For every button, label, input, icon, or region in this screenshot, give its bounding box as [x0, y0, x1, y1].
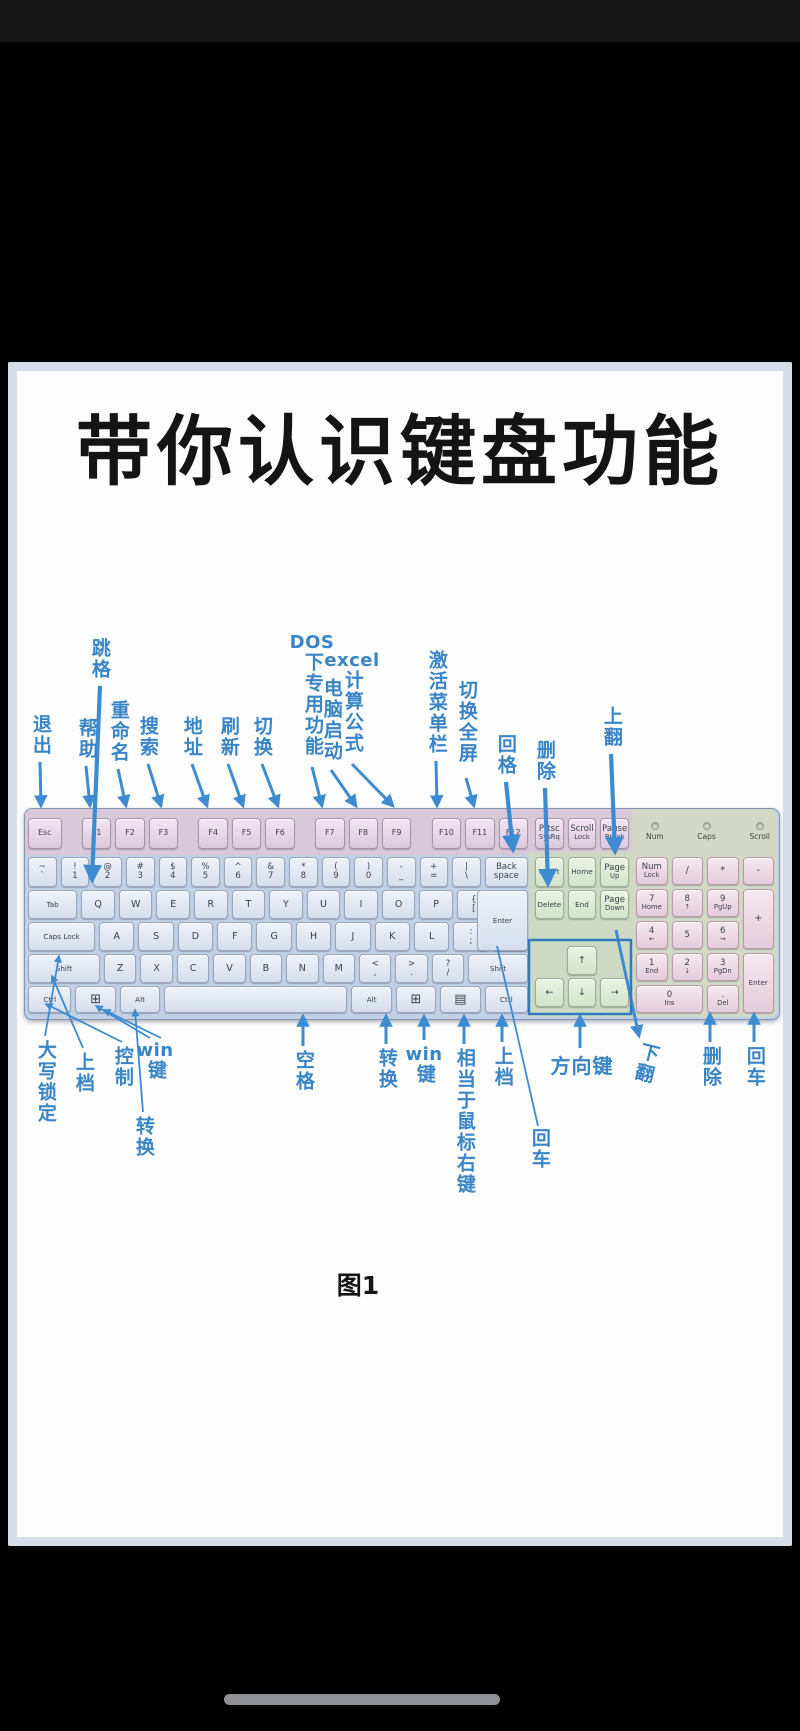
key-np8: 8↑ [672, 889, 704, 917]
callout-shift-left-text: 上档 [72, 1052, 94, 1094]
callout-pageup: 上翻 [600, 706, 622, 748]
keyboard-numpad: NumLock/*-7Home8↑9PgUp+4←56→1End2↓3PgDnE… [636, 857, 774, 1013]
key-backslash: |\ [452, 857, 481, 887]
callout-win-right-pre: win [405, 1046, 442, 1064]
callout-f10-text: 激活菜单栏 [425, 650, 447, 755]
key-m: M [323, 954, 355, 983]
callout-esc: 退出 [29, 714, 51, 756]
callout-backspace: 回格 [494, 734, 516, 776]
callout-menu-key-text: 相当于鼠标右键 [453, 1048, 475, 1195]
key-t: T [232, 890, 266, 919]
callout-space: 空格 [292, 1050, 314, 1092]
callout-tab: 跳格 [88, 638, 110, 680]
key-v: V [213, 954, 245, 983]
callout-num-enter-text: 回车 [743, 1046, 765, 1088]
callout-f5-text: 刷新 [217, 716, 239, 758]
key-np6: 6→ [707, 921, 739, 949]
key-pageup: PageUp [600, 857, 629, 887]
key-np9: 9PgUp [707, 889, 739, 917]
key-x: X [140, 954, 172, 983]
callout-menu-key: 相当于鼠标右键 [453, 1048, 475, 1195]
key-win-right: ⊞ [396, 986, 436, 1013]
callout-num-delete-text: 删除 [699, 1046, 721, 1088]
key-2: @2 [93, 857, 122, 887]
callout-shift-left: 上档 [72, 1052, 94, 1094]
key-arrow-up: ↑ [567, 946, 597, 975]
key-gap [415, 818, 427, 849]
callout-f1: 帮助 [75, 718, 97, 760]
key-delete: Delete [535, 890, 564, 919]
key-k: K [375, 922, 410, 951]
keyboard-enter-key: Enter [477, 890, 528, 951]
callout-esc-text: 退出 [29, 714, 51, 756]
key-minus: -_ [387, 857, 416, 887]
callout-f5: 刷新 [217, 716, 239, 758]
key-1: !1 [61, 857, 90, 887]
callout-shift-right: 上档 [491, 1046, 513, 1088]
home-indicator[interactable] [224, 1694, 500, 1705]
keyboard-function-row: EscF1F2F3F4F5F6F7F8F9F10F11F12 [28, 818, 528, 849]
key-menu: ▤ [440, 986, 480, 1013]
callout-ctrl-left: 控制 [111, 1046, 133, 1088]
callout-f6-text: 切换 [250, 716, 272, 758]
key-np3: 3PgDn [707, 953, 739, 981]
key-arrow-right: → [600, 978, 629, 1007]
key-np-enter: Enter [743, 953, 775, 1013]
keyboard-nav-row-1: PrtscSysRqScrollLockPauseBreak [535, 818, 629, 849]
callout-f4: 地址 [180, 716, 202, 758]
key-enter: Enter [477, 890, 528, 951]
callout-win-left-pre: win [136, 1042, 173, 1060]
callout-f9-pre: excel [324, 652, 379, 670]
callout-num-enter: 回车 [743, 1046, 765, 1088]
key-win-left: ⊞ [75, 986, 115, 1013]
status-bar-area [0, 0, 800, 43]
callout-arrow-keys: 方向键 [551, 1055, 614, 1078]
key-f8: F8 [349, 818, 378, 849]
key-b: B [250, 954, 282, 983]
key-w: W [119, 890, 153, 919]
callout-alt-right-text: 转换 [375, 1048, 397, 1090]
callout-enter: 回车 [528, 1128, 550, 1170]
key-insert: Insert [535, 857, 564, 887]
keyboard-nav-row-2: InsertHomePageUp [535, 857, 629, 887]
key-home: Home [568, 857, 597, 887]
callout-num-delete: 删除 [699, 1046, 721, 1088]
key-prtsc: PrtscSysRq [535, 818, 564, 849]
key-f11: F11 [465, 818, 494, 849]
callout-f10: 激活菜单栏 [425, 650, 447, 755]
key-grave: ~` [28, 857, 57, 887]
keyboard-nav-row-3: DeleteEndPageDown [535, 890, 629, 919]
key-np1: 1End [636, 953, 668, 981]
key-f9: F9 [382, 818, 411, 849]
key-y: Y [269, 890, 303, 919]
callout-space-text: 空格 [292, 1050, 314, 1092]
key-f2: F2 [115, 818, 144, 849]
key-ctrl-right: Ctrl [485, 986, 528, 1013]
callout-shift-right-text: 上档 [491, 1046, 513, 1088]
key-gap [66, 818, 78, 849]
key-gap [535, 946, 563, 975]
bottom-black-bar [0, 1546, 800, 1731]
key-e: E [156, 890, 190, 919]
key-o: O [382, 890, 416, 919]
key-f1: F1 [82, 818, 111, 849]
indicator-caps: Caps [697, 822, 716, 850]
key-r: R [194, 890, 228, 919]
key-space [164, 986, 347, 1013]
key-np-divide: / [672, 857, 704, 885]
key-f3: F3 [149, 818, 178, 849]
callout-f9: excel计算公式 [324, 652, 379, 754]
keyboard-led-indicators: NumCapsScroll [646, 822, 770, 850]
key-slash: ?/ [432, 954, 464, 983]
callout-f3-text: 搜索 [136, 716, 158, 758]
key-f7: F7 [315, 818, 344, 849]
indicator-scroll: Scroll [749, 822, 770, 850]
key-n: N [286, 954, 318, 983]
key-ctrl-left: Ctrl [28, 986, 71, 1013]
key-g: G [256, 922, 291, 951]
page-title: 带你认识键盘功能 [0, 390, 800, 500]
key-backspace: Backspace [485, 857, 528, 887]
callout-f1-text: 帮助 [75, 718, 97, 760]
key-np-multiply: * [707, 857, 739, 885]
callout-delete-text: 删除 [533, 740, 555, 782]
key-end: End [568, 890, 597, 919]
key-gap [182, 818, 194, 849]
key-8: *8 [289, 857, 318, 887]
callout-win-right-text: 键 [413, 1064, 435, 1085]
key-f10: F10 [432, 818, 461, 849]
key-q: Q [81, 890, 115, 919]
top-black-bar [0, 0, 800, 362]
key-c: C [177, 954, 209, 983]
key-numlock: NumLock [636, 857, 668, 885]
key-pause: PauseBreak [600, 818, 629, 849]
callout-f2: 重命名 [107, 700, 129, 763]
key-np-dot: .Del [707, 985, 739, 1013]
key-period: >. [395, 954, 427, 983]
key-shift-right: Shift [468, 954, 528, 983]
callout-f2-text: 重命名 [107, 700, 129, 763]
key-shift-left: Shift [28, 954, 100, 983]
key-4: $4 [159, 857, 188, 887]
key-7: &7 [256, 857, 285, 887]
key-gap [601, 946, 629, 975]
key-comma: <, [359, 954, 391, 983]
key-np-minus: - [743, 857, 775, 885]
key-np2: 2↓ [672, 953, 704, 981]
key-np0: 0Ins [636, 985, 703, 1013]
key-a: A [99, 922, 134, 951]
callout-alt-left-text: 转换 [132, 1116, 154, 1158]
key-np-plus: + [743, 889, 775, 949]
key-5: %5 [191, 857, 220, 887]
callout-arrow-keys-text: 方向键 [551, 1055, 614, 1078]
key-3: #3 [126, 857, 155, 887]
key-d: D [178, 922, 213, 951]
callout-capslock: 大写锁定 [34, 1040, 56, 1124]
key-s: S [138, 922, 173, 951]
key-pagedown: PageDown [600, 890, 629, 919]
key-f5: F5 [232, 818, 261, 849]
key-h: H [296, 922, 331, 951]
key-arrow-down: ↓ [568, 978, 597, 1007]
key-gap [299, 818, 311, 849]
key-capslock: Caps Lock [28, 922, 95, 951]
callout-win-left: win键 [136, 1042, 173, 1081]
key-f4: F4 [198, 818, 227, 849]
callout-tab-text: 跳格 [88, 638, 110, 680]
key-9: (9 [322, 857, 351, 887]
callout-win-right: win键 [405, 1046, 442, 1085]
key-tab: Tab [28, 890, 77, 919]
callout-enter-text: 回车 [528, 1128, 550, 1170]
key-esc: Esc [28, 818, 62, 849]
callout-alt-right: 转换 [375, 1048, 397, 1090]
key-0: )0 [354, 857, 383, 887]
figure-caption: 图1 [0, 1266, 716, 1302]
phone-screenshot: 带你认识键盘功能 EscF1F2F3F4F5F6F7F8F9F10F11F12 … [0, 0, 800, 1731]
key-f12: F12 [499, 818, 528, 849]
callout-backspace-text: 回格 [494, 734, 516, 776]
key-plus: += [420, 857, 449, 887]
key-np7: 7Home [636, 889, 668, 917]
callout-f3: 搜索 [136, 716, 158, 758]
key-np4: 4← [636, 921, 668, 949]
key-l: L [414, 922, 449, 951]
keyboard-arrow-low-row: ←↓→ [535, 978, 629, 1007]
callout-f4-text: 地址 [180, 716, 202, 758]
callout-ctrl-left-text: 控制 [111, 1046, 133, 1088]
callout-capslock-text: 大写锁定 [34, 1040, 56, 1124]
callout-pageup-text: 上翻 [600, 706, 622, 748]
key-scroll-lock: ScrollLock [568, 818, 597, 849]
key-p: P [419, 890, 453, 919]
key-alt-left: Alt [120, 986, 160, 1013]
key-i: I [344, 890, 378, 919]
key-alt-right: Alt [351, 986, 391, 1013]
key-np5: 5 [672, 921, 704, 949]
keyboard-bottom-row: Ctrl⊞AltAlt⊞▤Ctrl [28, 986, 528, 1013]
keyboard-arrow-up-row: ↑ [535, 946, 629, 975]
keyboard-shift-row: ShiftZXCVBNM<,>.?/Shift [28, 954, 528, 983]
callout-f6: 切换 [250, 716, 272, 758]
callout-f11: 切换全屏 [455, 680, 477, 764]
callout-alt-left: 转换 [132, 1116, 154, 1158]
key-arrow-left: ← [535, 978, 564, 1007]
indicator-num: Num [646, 822, 664, 850]
callout-delete: 删除 [533, 740, 555, 782]
key-f6: F6 [265, 818, 294, 849]
keyboard-number-row: ~`!1@2#3$4%5^6&7*8(9)0-_+=|\Backspace [28, 857, 528, 887]
callout-f11-text: 切换全屏 [455, 680, 477, 764]
key-z: Z [104, 954, 136, 983]
key-u: U [307, 890, 341, 919]
callout-win-left-text: 键 [144, 1060, 166, 1081]
key-j: J [335, 922, 370, 951]
key-6: ^6 [224, 857, 253, 887]
callout-f9-text: 计算公式 [341, 670, 363, 754]
key-f: F [217, 922, 252, 951]
